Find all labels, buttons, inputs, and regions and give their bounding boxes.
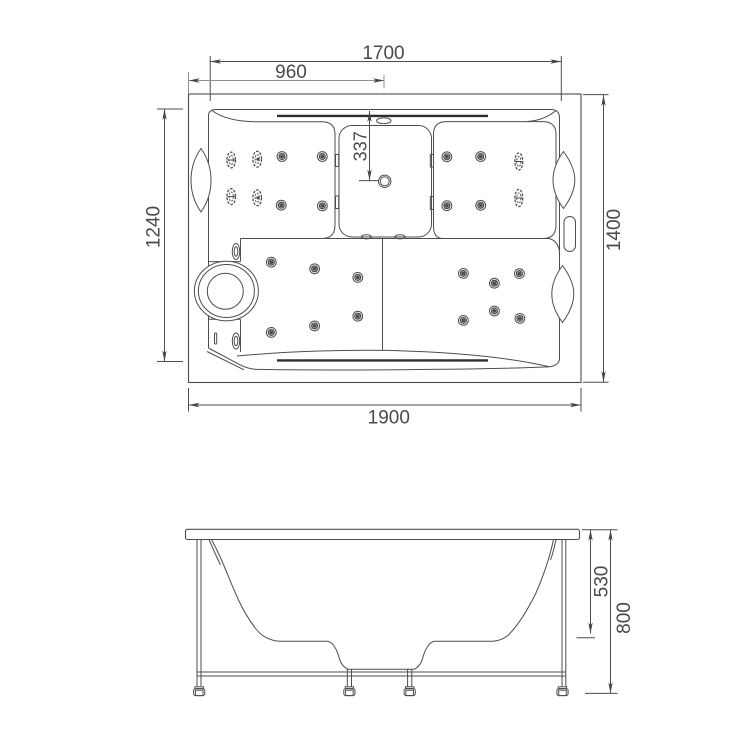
svg-text:530: 530 <box>592 566 613 598</box>
svg-text:1240: 1240 <box>144 206 165 248</box>
svg-text:1900: 1900 <box>368 407 410 428</box>
svg-text:800: 800 <box>614 602 635 634</box>
svg-text:960: 960 <box>275 62 307 83</box>
svg-text:1400: 1400 <box>604 209 625 251</box>
svg-text:337: 337 <box>351 131 371 161</box>
svg-text:1700: 1700 <box>362 43 404 64</box>
